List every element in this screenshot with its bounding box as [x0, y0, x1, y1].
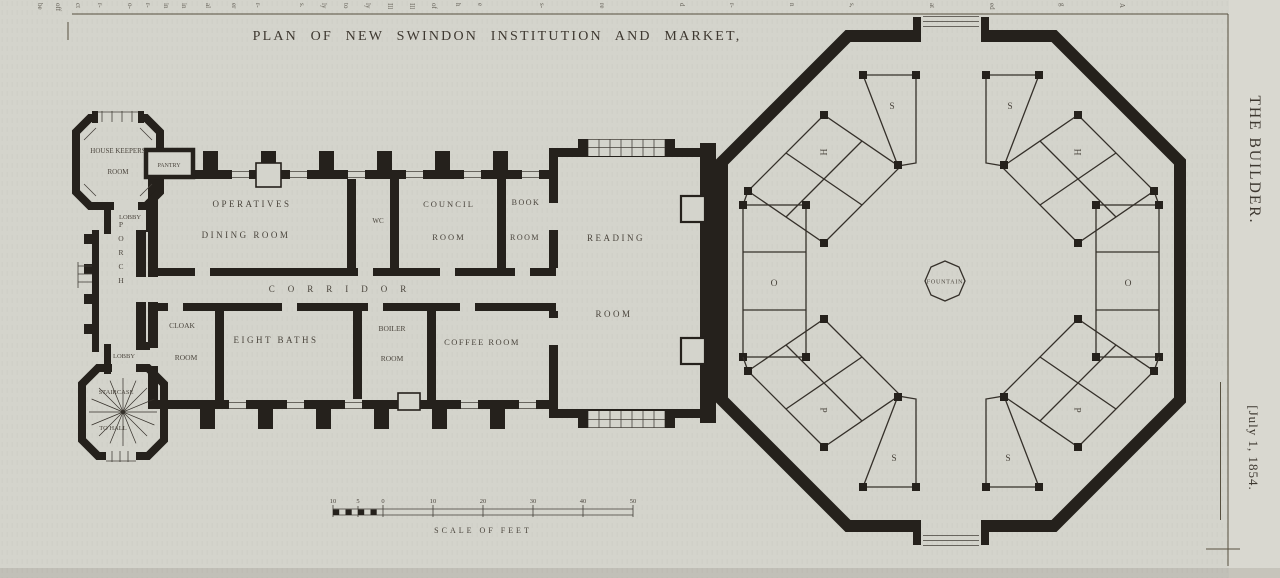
label-wc: WC [372, 217, 384, 225]
scale-tick: 30 [530, 498, 537, 505]
label-reading-1: READING [587, 233, 645, 243]
stall-letter-o-right: O [1125, 279, 1132, 289]
showthrough-fragment: r- [144, 3, 152, 8]
showthrough-fragment: at [928, 3, 936, 8]
boiler-furnace-mark [398, 393, 420, 410]
showthrough-fragment: d [678, 3, 686, 7]
stall-letter-s-top-left: S [889, 102, 894, 112]
label-council-1: COUNCIL [423, 199, 475, 209]
scanned-page: be off ct r- o- r- in in al er r- s. ly … [0, 0, 1280, 578]
label-house-keepers-2: ROOM [107, 168, 129, 176]
showthrough-fragment: re [598, 3, 606, 8]
label-cloak-2: ROOM [175, 353, 198, 362]
showthrough-fragment: ct [74, 3, 82, 8]
scale-tick: 5 [356, 498, 359, 505]
label-pantry: PANTRY [157, 163, 181, 169]
showthrough-fragment: r- [254, 3, 262, 8]
showthrough-fragment: ed [988, 3, 996, 10]
label-boiler-1: BOILER [378, 324, 405, 333]
showthrough-fragment: in [180, 3, 188, 9]
issue-date: [July 1, 1854. [1246, 405, 1261, 491]
label-operatives-2: DINING ROOM [202, 230, 291, 240]
scale-tick: 40 [580, 498, 587, 505]
showthrough-fragment: ly [364, 3, 372, 9]
label-fountain: FOUNTAIN [927, 280, 964, 286]
showthrough-fragment: to [342, 3, 350, 9]
showthrough-fragment: s- [538, 3, 546, 9]
stall-letter-p-bottom-left: P [818, 407, 828, 412]
fireplace-mark [256, 163, 281, 187]
plan-engraving: be off ct r- o- r- in in al er r- s. ly … [0, 0, 1280, 578]
label-corridor: CORRIDOR [269, 284, 420, 294]
stall-letter-s-bottom-right: S [1005, 454, 1010, 464]
showthrough-fragment: of [430, 3, 438, 10]
label-operatives-1: OPERATIVES [212, 199, 291, 209]
stall-letter-s-top-right: S [1007, 102, 1012, 112]
showthrough-fragment: ly [320, 3, 328, 9]
showthrough-fragment: r- [96, 3, 104, 8]
stall-letter-s-bottom-left: S [891, 454, 896, 464]
stall-letter-o-left: O [771, 279, 778, 289]
right-margin [1229, 0, 1280, 578]
plan-title: PLAN OF NEW SWINDON INSTITUTION AND MARK… [253, 29, 742, 44]
label-book-1: BOOK [512, 198, 541, 207]
label-lobby-lower: LOBBY [113, 353, 135, 360]
showthrough-fragment: o- [126, 3, 134, 10]
showthrough-fragment: off [54, 3, 62, 12]
showthrough-fragment: in [162, 3, 170, 9]
label-to-hall: TO HALL [99, 425, 127, 432]
scale-tick: 10 [430, 498, 437, 505]
showthrough-fragment: g [1058, 3, 1066, 7]
journal-masthead: THE BUILDER. [1246, 95, 1263, 224]
showthrough-fragment: Ill [408, 3, 416, 9]
stall-letter-h-top-right: H [1072, 149, 1082, 156]
label-coffee-room: COFFEE ROOM [444, 337, 520, 347]
stall-letter-p-bottom-right: P [1072, 407, 1082, 412]
showthrough-fragment: al [204, 3, 212, 8]
pillar [681, 338, 705, 364]
scale-tick: 10 [330, 498, 337, 505]
scale-tick: 50 [630, 498, 637, 505]
scale-caption: SCALE OF FEET [434, 526, 532, 535]
scale-tick: 20 [480, 498, 487, 505]
pillar [681, 196, 705, 222]
label-book-2: ROOM [510, 233, 540, 242]
showthrough-fragment: s. [298, 3, 306, 8]
showthrough-fragment: e [476, 3, 484, 6]
showthrough-fragment: h [454, 3, 462, 7]
label-porch: PORCH [117, 220, 126, 290]
showthrough-fragment: A [1118, 3, 1126, 8]
label-staircase: STAIRCASE [99, 389, 134, 396]
scale-tick: 0 [381, 498, 384, 505]
label-cloak-1: CLOAK [169, 321, 195, 330]
showthrough-fragment: be [36, 3, 44, 10]
showthrough-fragment: Ill [386, 3, 394, 9]
label-eight-baths: EIGHT BATHS [233, 335, 318, 345]
label-council-2: ROOM [432, 232, 466, 242]
label-reading-2: ROOM [595, 309, 632, 319]
showthrough-fragment: r- [728, 3, 736, 8]
bottom-shadow [0, 568, 1280, 578]
showthrough-fragment: er [230, 3, 238, 9]
stall-letter-h-top-left: H [818, 149, 828, 156]
showthrough-fragment: s, [848, 3, 856, 8]
showthrough-fragment: n [788, 3, 796, 7]
label-boiler-2: ROOM [381, 354, 404, 363]
label-house-keepers-1: HOUSE KEEPERS [90, 147, 146, 155]
